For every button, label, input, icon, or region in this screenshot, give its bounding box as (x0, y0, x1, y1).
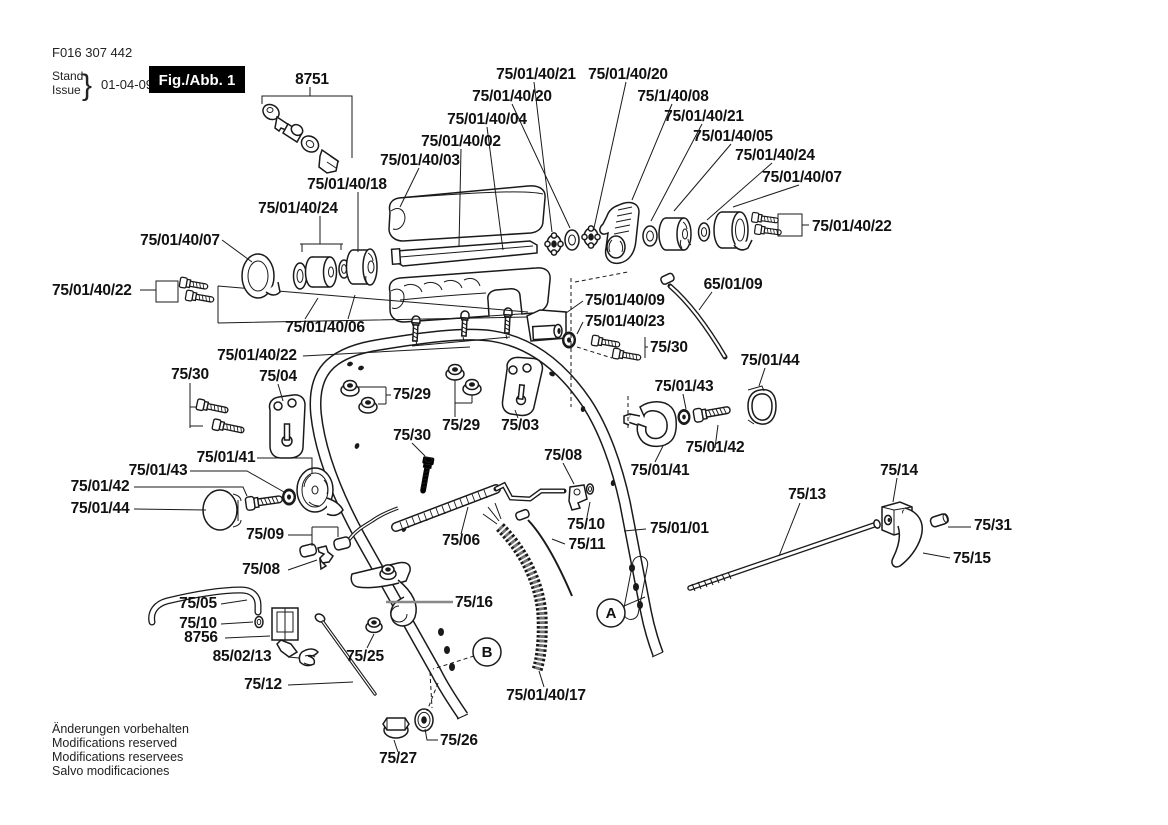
issue-label: Issue (52, 83, 81, 97)
part-label: 75/01/40/22 (217, 347, 297, 364)
part-label: 75/15 (953, 550, 991, 567)
trigger-group (690, 502, 950, 591)
part-label: 75/01/44 (71, 500, 130, 517)
footer-line-de: Änderungen vorbehalten (52, 722, 189, 736)
part-label: 75/13 (788, 486, 826, 503)
part-label: 75/01/40/20 (588, 66, 668, 83)
part-label: 75/1/40/08 (637, 88, 709, 105)
part-label: 75/30 (393, 427, 431, 444)
part-label: 75/01/43 (655, 378, 714, 395)
part-label: 8751 (295, 71, 329, 88)
part-label: 75/31 (974, 517, 1012, 534)
part-label: 75/01/40/24 (735, 147, 815, 164)
header: F016 307 442 Stand Issue } 01-04-09 Fig.… (52, 45, 245, 102)
part-label: 75/29 (393, 386, 431, 403)
part-label: 75/08 (544, 447, 582, 464)
part-label: 75/26 (440, 732, 478, 749)
part-label: 75/16 (455, 594, 493, 611)
callout-a: A (597, 599, 625, 627)
part-label: 75/01/40/03 (380, 152, 460, 169)
part-label: 75/12 (244, 676, 282, 693)
part-label: 75/01/40/02 (421, 133, 501, 150)
part-label: 75/01/40/04 (447, 111, 527, 128)
parts-diagram-page: F016 307 442 Stand Issue } 01-04-09 Fig.… (0, 0, 1168, 825)
part-label: 75/01/01 (650, 520, 709, 537)
callout-b-letter: B (482, 644, 493, 661)
figure-label: Fig./Abb. 1 (159, 72, 236, 89)
part-label: 75/01/40/23 (585, 313, 665, 330)
footer-line-en: Modifications reserved (52, 736, 177, 750)
brace-glyph: } (82, 69, 92, 102)
part-label: 75/05 (179, 595, 217, 612)
part-label: 75/01/42 (686, 439, 745, 456)
part-label: 75/01/40/05 (693, 128, 773, 145)
cap-07-right (714, 212, 752, 250)
part-label: 75/01/41 (197, 449, 256, 466)
part-label: 75/29 (442, 417, 480, 434)
part-label: 75/14 (880, 462, 918, 479)
part-label: 75/30 (171, 366, 209, 383)
part-labels: 8751 75/01/40/21 75/01/40/20 75/01/40/20… (52, 66, 1012, 767)
part-label: 75/11 (569, 536, 607, 553)
part-label: 75/06 (442, 532, 480, 549)
part-label: 75/01/40/21 (496, 66, 576, 83)
part-label: 75/10 (567, 516, 605, 533)
ratchet-and-washers-right (545, 203, 809, 264)
part-label: 75/03 (501, 417, 539, 434)
part-label: 75/01/40/07 (762, 169, 842, 186)
footer-line-fr: Modifications reservees (52, 750, 183, 764)
footer-line-es: Salvo modificaciones (52, 764, 169, 778)
part-label: 75/09 (246, 526, 284, 543)
document-part-number: F016 307 442 (52, 45, 132, 60)
part-label: 75/27 (379, 750, 417, 767)
part-label: 75/01/40/24 (258, 200, 338, 217)
part-label: 75/01/40/07 (140, 232, 220, 249)
footer-disclaimer: Änderungen vorbehalten Modifications res… (52, 722, 189, 778)
part-label: 75/08 (242, 561, 280, 578)
exploded-view-figure: F016 307 442 Stand Issue } 01-04-09 Fig.… (0, 0, 1168, 825)
callout-a-letter: A (606, 605, 617, 622)
clamp-group-left (190, 381, 391, 459)
part-label: 75/01/44 (741, 352, 800, 369)
issue-date: 01-04-09 (101, 77, 153, 92)
part-label: 85/02/13 (213, 648, 272, 665)
part-label: 75/25 (346, 648, 384, 665)
part-label: 75/01/42 (71, 478, 130, 495)
clamp-group-right (446, 355, 544, 418)
pulley-05 (659, 218, 691, 250)
bolt-75-30-mid (417, 456, 435, 494)
lever-bracket-75-16 (351, 562, 416, 632)
callout-b: B (473, 638, 501, 666)
part-label: 75/01/40/22 (812, 218, 892, 235)
part-label: 75/01/41 (631, 462, 690, 479)
part-label: 75/01/40/09 (585, 292, 665, 309)
part-label: 75/04 (259, 368, 297, 385)
cam-lever-group-left (203, 468, 343, 530)
part-label: 75/01/43 (129, 462, 188, 479)
part-label: 75/01/40/17 (506, 687, 586, 704)
part-label: 75/01/40/21 (664, 108, 744, 125)
part-label: 75/30 (650, 339, 688, 356)
part-label: 75/01/40/06 (285, 319, 365, 336)
bottom-fasteners (383, 683, 438, 738)
part-label: 65/01/09 (704, 276, 763, 293)
cam-lever-group-right (624, 386, 776, 446)
part-label: 8756 (184, 629, 218, 646)
part-label: 75/01/40/18 (307, 176, 387, 193)
key-fastener-set (260, 87, 352, 173)
stand-label: Stand (52, 69, 83, 83)
part-label: 75/01/40/20 (472, 88, 552, 105)
part-label: 75/01/40/22 (52, 282, 132, 299)
clip-75-08-right (569, 484, 593, 510)
